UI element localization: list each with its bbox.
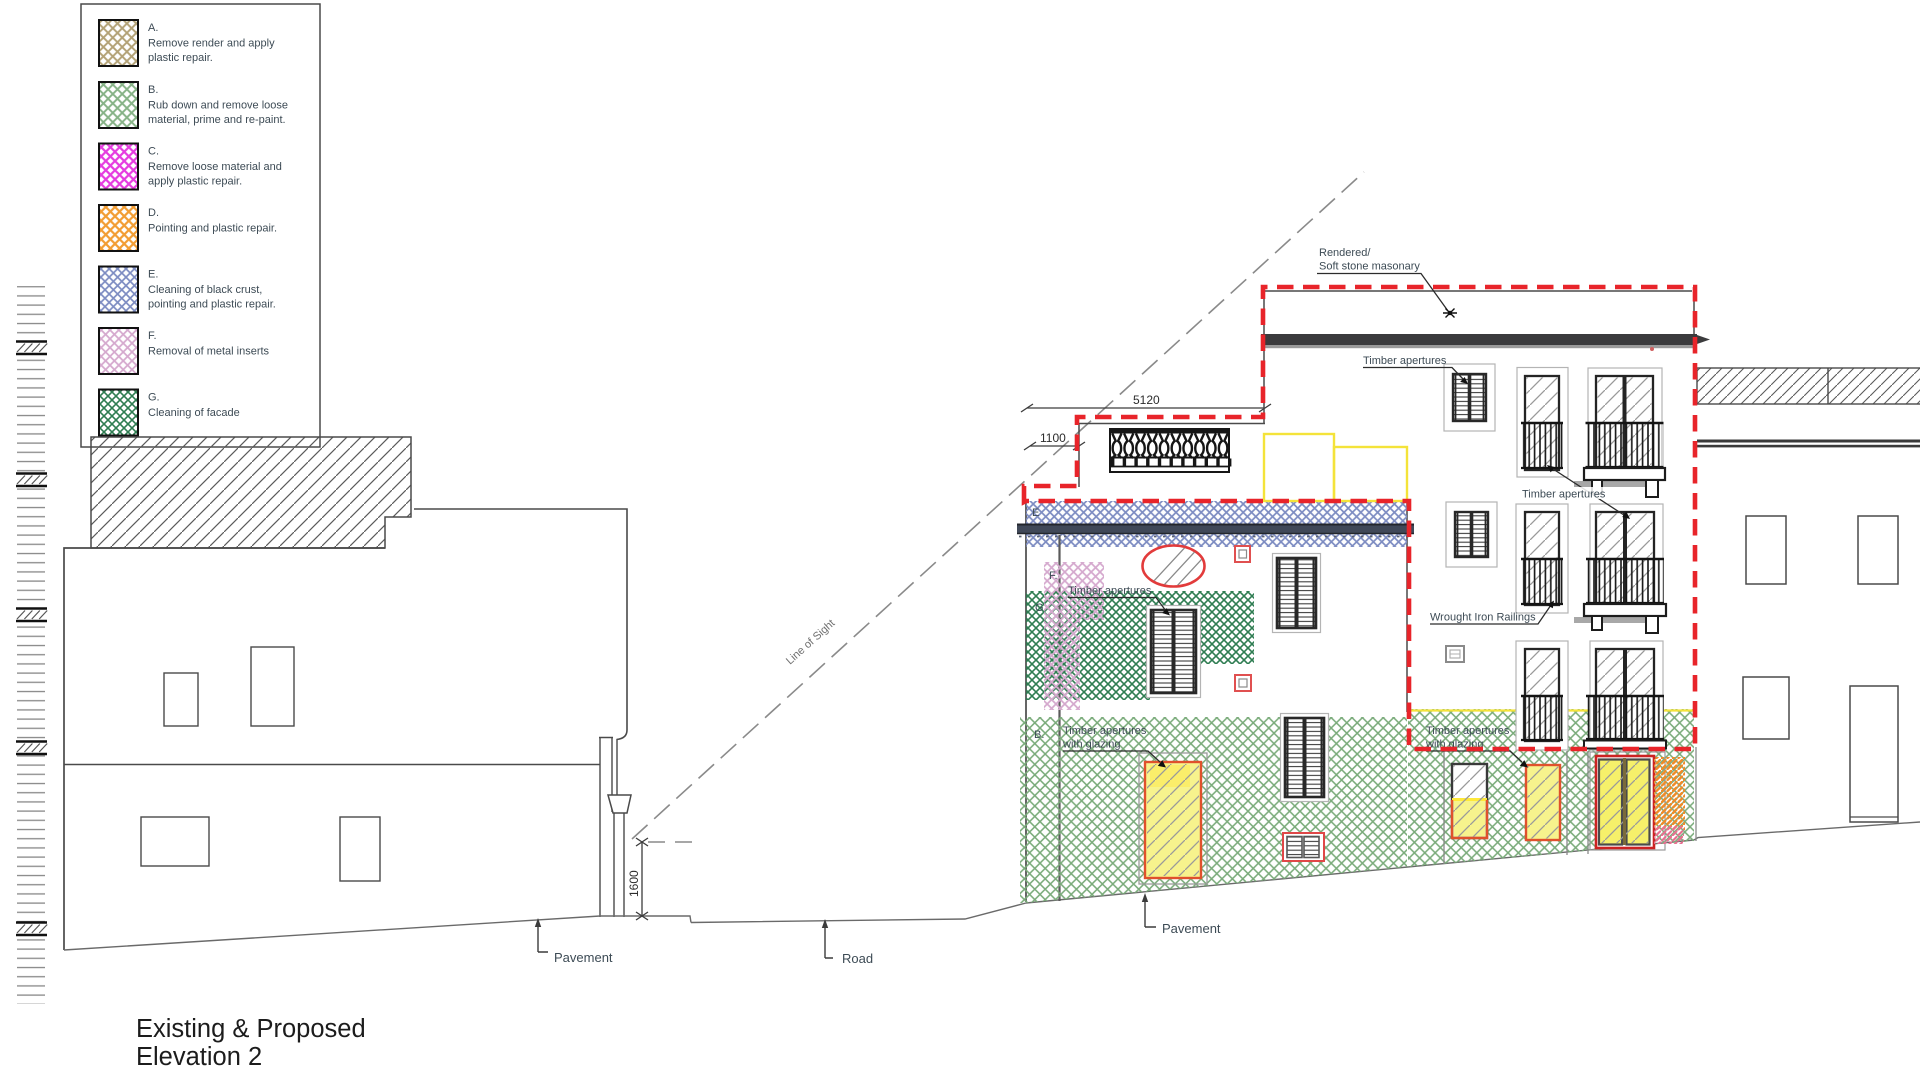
svg-text:Pavement: Pavement — [554, 950, 613, 965]
svg-text:material, prime and re-paint.: material, prime and re-paint. — [148, 114, 286, 126]
svg-text:B.: B. — [1034, 729, 1044, 741]
svg-text:Timber apertures: Timber apertures — [1063, 725, 1147, 737]
svg-text:Removal of metal inserts: Removal of metal inserts — [148, 346, 270, 358]
svg-text:G.: G. — [148, 392, 160, 404]
svg-text:Rendered/: Rendered/ — [1319, 247, 1371, 259]
svg-text:E: E — [1032, 507, 1039, 519]
svg-text:Soft stone masonary: Soft stone masonary — [1319, 261, 1420, 273]
svg-text:plastic repair.: plastic repair. — [148, 52, 213, 64]
svg-text:pointing and plastic repair.: pointing and plastic repair. — [148, 299, 276, 311]
svg-text:Pointing and plastic repair.: Pointing and plastic repair. — [148, 223, 277, 235]
svg-text:Timber apertures: Timber apertures — [1426, 725, 1510, 737]
svg-text:Cleaning of black crust,: Cleaning of black crust, — [148, 284, 262, 296]
svg-text:Elevation 2: Elevation 2 — [136, 1043, 262, 1071]
svg-text:Remove loose material and: Remove loose material and — [148, 161, 282, 173]
svg-text:Road: Road — [842, 951, 873, 966]
svg-text:Remove render and apply: Remove render and apply — [148, 38, 275, 50]
svg-text:Rub down and remove loose: Rub down and remove loose — [148, 100, 288, 112]
svg-text:F.: F. — [148, 330, 157, 342]
svg-text:Timber apertures: Timber apertures — [1522, 489, 1606, 501]
svg-text:A.: A. — [148, 22, 158, 34]
svg-text:5120: 5120 — [1133, 393, 1160, 407]
svg-text:Timber apertures: Timber apertures — [1068, 585, 1152, 597]
svg-text:1600: 1600 — [627, 870, 641, 897]
svg-text:B.: B. — [148, 84, 158, 96]
svg-text:G: G — [1035, 602, 1044, 614]
svg-text:Wrought Iron Railings: Wrought Iron Railings — [1430, 612, 1536, 624]
svg-text:C.: C. — [148, 146, 159, 158]
svg-text:with glazing: with glazing — [1062, 739, 1120, 751]
svg-text:1100: 1100 — [1040, 431, 1066, 445]
svg-text:Pavement: Pavement — [1162, 921, 1221, 936]
svg-text:D.: D. — [148, 207, 159, 219]
svg-text:E.: E. — [148, 269, 158, 281]
svg-text:F.: F. — [1049, 570, 1058, 582]
svg-text:apply plastic repair.: apply plastic repair. — [148, 176, 242, 188]
svg-text:Cleaning of facade: Cleaning of facade — [148, 407, 240, 419]
svg-text:Existing & Proposed: Existing & Proposed — [136, 1015, 366, 1043]
svg-text:Timber apertures: Timber apertures — [1363, 355, 1447, 367]
